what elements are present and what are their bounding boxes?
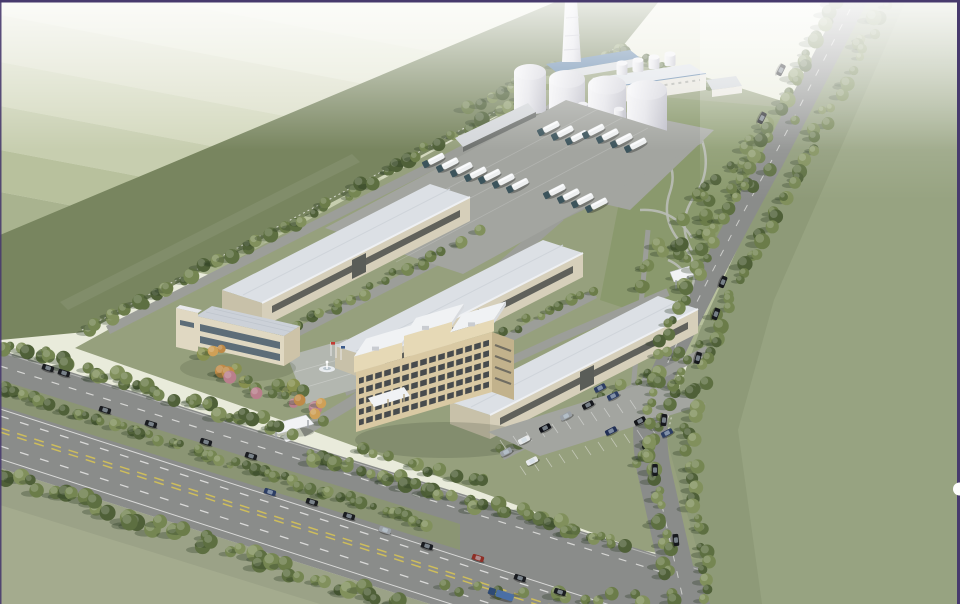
flag <box>331 342 335 345</box>
tree-highlight <box>288 379 295 386</box>
tree-highlight <box>695 269 702 276</box>
tree-highlight <box>636 280 644 288</box>
tree-highlight <box>451 470 458 477</box>
tree-highlight <box>724 303 730 309</box>
tree-highlight <box>369 450 374 455</box>
tree-highlight <box>269 389 274 394</box>
tree-highlight <box>664 398 671 405</box>
tree-highlight <box>703 585 708 590</box>
tree-highlight <box>134 428 140 434</box>
tree-highlight <box>357 580 366 589</box>
tree-highlight <box>21 345 29 353</box>
tree-highlight <box>382 277 387 282</box>
aerial-rendering <box>0 0 960 604</box>
tree-highlight <box>606 587 614 595</box>
tree-highlight <box>154 515 162 523</box>
tree-highlight <box>643 405 648 410</box>
tree-highlight <box>724 294 730 300</box>
car-glass <box>653 467 657 472</box>
tree-highlight <box>653 238 660 245</box>
tree-highlight <box>696 230 701 235</box>
tree-highlight <box>686 386 694 394</box>
tree-highlight <box>770 210 778 218</box>
tree-highlight <box>447 490 453 496</box>
tree-highlight <box>701 574 708 581</box>
tree-highlight <box>360 445 366 451</box>
tree-highlight <box>524 510 530 516</box>
tree-highlight <box>395 470 403 478</box>
tree-highlight <box>14 469 23 478</box>
tree-highlight <box>701 377 708 384</box>
tree-highlight <box>409 460 414 465</box>
tree-highlight <box>676 238 684 246</box>
tree-highlight <box>658 246 665 253</box>
tree-highlight <box>246 413 254 421</box>
tree-highlight <box>250 464 257 471</box>
tree-highlight <box>533 512 541 520</box>
tree-highlight <box>416 520 420 524</box>
tree-highlight <box>650 389 655 394</box>
tree-highlight <box>43 350 50 357</box>
tree-highlight <box>706 347 712 353</box>
tree-highlight <box>83 363 89 369</box>
tree-highlight <box>701 545 709 553</box>
tree-highlight <box>434 463 441 470</box>
tree-highlight <box>402 264 409 271</box>
tree-highlight <box>699 566 704 571</box>
tree-highlight <box>703 228 710 235</box>
tree-highlight <box>426 251 432 257</box>
tree-highlight <box>691 400 699 408</box>
tree-highlight <box>631 590 636 595</box>
tree-highlight <box>283 569 291 577</box>
tree-highlight <box>208 346 214 352</box>
flag <box>336 344 340 347</box>
tree-highlight <box>141 378 149 386</box>
car <box>651 464 658 478</box>
tree-highlight <box>367 178 374 185</box>
tree-highlight <box>354 177 362 185</box>
tree-highlight <box>44 399 51 406</box>
tree-highlight <box>475 225 481 231</box>
tree-highlight <box>79 489 89 499</box>
rooftop-unit <box>422 326 429 330</box>
tree-highlight <box>607 540 612 545</box>
tree-highlight <box>153 436 159 442</box>
tree-highlight <box>700 594 706 600</box>
tree-highlight <box>680 445 687 452</box>
tree-highlight <box>239 408 246 415</box>
tree-highlight <box>658 501 663 506</box>
tree-highlight <box>691 460 699 468</box>
tree-highlight <box>328 456 337 465</box>
tree-highlight <box>364 588 372 596</box>
tree-highlight <box>9 387 15 393</box>
tree-highlight <box>664 329 671 336</box>
tree-highlight <box>101 506 110 515</box>
tree-highlight <box>695 523 700 528</box>
tree-highlight <box>264 554 274 564</box>
tree-highlight <box>440 580 446 586</box>
tree-highlight <box>700 209 708 217</box>
tree-highlight <box>324 487 330 493</box>
tree-highlight <box>703 353 709 359</box>
tree-highlight <box>693 189 701 197</box>
tree-highlight <box>643 436 651 444</box>
tree-highlight <box>218 345 223 350</box>
tree-highlight <box>515 326 519 330</box>
tree-highlight <box>678 368 682 372</box>
tree-highlight <box>360 290 366 296</box>
tree-highlight <box>654 376 661 383</box>
rooftop-unit <box>372 347 379 351</box>
tree-highlight <box>294 482 300 488</box>
tree-highlight <box>518 503 525 510</box>
tree-highlight <box>383 507 388 512</box>
tree-highlight <box>572 526 577 531</box>
tree-highlight <box>437 247 442 252</box>
tree-highlight <box>673 302 680 309</box>
annex-tower <box>176 308 198 352</box>
tree-highlight <box>478 499 484 505</box>
tree-highlight <box>319 416 325 422</box>
tree-highlight <box>767 221 774 228</box>
tree-highlight <box>664 319 669 324</box>
right-haze <box>700 0 960 200</box>
tree-highlight <box>255 551 262 558</box>
tree-highlight <box>576 292 581 297</box>
tree-highlight <box>411 152 417 158</box>
tree-highlight <box>680 423 685 428</box>
tree-highlight <box>652 516 660 524</box>
tree-highlight <box>315 309 320 314</box>
tree-highlight <box>214 455 220 461</box>
tree-highlight <box>59 405 65 411</box>
tree-highlight <box>265 469 270 474</box>
fountain-spray <box>326 361 329 364</box>
tree-highlight <box>519 588 525 594</box>
tree-highlight <box>395 508 402 515</box>
tree-highlight <box>676 376 681 381</box>
tree-highlight <box>133 381 138 386</box>
tree-highlight <box>411 479 417 485</box>
tree-highlight <box>346 457 351 462</box>
tree-highlight <box>712 338 718 344</box>
tree-highlight <box>643 452 649 458</box>
tree-highlight <box>245 376 250 381</box>
tree-highlight <box>384 451 390 457</box>
tree-highlight <box>121 372 128 379</box>
tree-highlight <box>688 433 696 441</box>
tree-highlight <box>26 475 32 481</box>
tree-highlight <box>19 390 25 396</box>
tree-highlight <box>311 576 317 582</box>
tree-highlight <box>656 487 661 492</box>
tree-highlight <box>590 287 595 292</box>
tree-highlight <box>243 461 248 466</box>
tree-highlight <box>177 522 185 530</box>
tree-highlight <box>723 202 730 209</box>
tree-highlight <box>1 387 7 393</box>
tree-highlight <box>703 556 710 563</box>
tree-highlight <box>334 299 339 304</box>
tree-highlight <box>607 534 612 539</box>
tree-highlight <box>50 486 57 493</box>
tree-highlight <box>704 254 709 259</box>
office-side-wall <box>492 332 514 400</box>
tree-highlight <box>598 532 603 537</box>
tree-highlight <box>474 582 479 587</box>
tree-highlight <box>581 595 587 601</box>
tree-highlight <box>456 237 463 244</box>
tree-highlight <box>203 399 209 405</box>
tree-highlight <box>297 217 303 223</box>
flag <box>341 346 345 349</box>
tree-highlight <box>740 268 745 273</box>
car-glass <box>674 537 679 543</box>
tree-highlight <box>500 507 506 513</box>
tree-highlight <box>273 421 279 427</box>
tree-highlight <box>357 467 363 473</box>
tree-highlight <box>674 347 681 354</box>
tree-highlight <box>640 265 644 269</box>
tree-highlight <box>177 440 181 444</box>
tree-highlight <box>207 451 213 457</box>
tree-highlight <box>370 503 374 507</box>
tree-highlight <box>204 535 212 543</box>
tree-highlight <box>719 213 726 220</box>
tree-highlight <box>755 234 764 243</box>
tree-highlight <box>433 490 439 496</box>
tree-highlight <box>619 540 627 548</box>
rendering-stage <box>0 0 960 604</box>
tree-highlight <box>195 445 200 450</box>
tree-highlight <box>752 250 758 256</box>
tree-highlight <box>269 471 275 477</box>
tree-highlight <box>122 515 131 524</box>
tree-highlight <box>402 511 409 518</box>
tree-highlight <box>409 516 415 522</box>
tree-highlight <box>282 392 287 397</box>
tree-highlight <box>367 470 372 475</box>
tree-highlight <box>298 385 305 392</box>
tree-highlight <box>522 314 527 319</box>
tree-highlight <box>133 295 142 304</box>
tree-highlight <box>212 408 221 417</box>
tree-highlight <box>370 594 376 600</box>
tree-highlight <box>350 498 355 503</box>
tree-highlight <box>684 255 688 259</box>
tree-highlight <box>695 515 699 519</box>
tree-highlight <box>146 431 150 435</box>
tree-highlight <box>279 557 287 565</box>
tree-highlight <box>120 422 124 426</box>
tree-highlight <box>477 475 483 481</box>
tree-highlight <box>310 409 316 415</box>
tree-highlight <box>319 576 326 583</box>
tree-highlight <box>652 492 659 499</box>
tree-highlight <box>307 454 315 462</box>
tree-highlight <box>389 269 393 273</box>
tree-highlight <box>66 487 73 494</box>
tree-highlight <box>293 572 299 578</box>
tree-highlight <box>288 475 294 481</box>
tree-highlight <box>663 530 668 535</box>
tree-highlight <box>346 295 352 301</box>
tree-highlight <box>60 357 68 365</box>
tree-highlight <box>455 588 460 593</box>
tree-highlight <box>654 349 660 355</box>
tree-highlight <box>426 484 434 492</box>
tree-highlight <box>684 428 691 435</box>
tree-highlight <box>366 283 370 287</box>
tree-highlight <box>392 593 401 602</box>
tree-highlight <box>686 499 694 507</box>
tree-highlight <box>714 319 723 328</box>
tree-highlight <box>654 335 661 342</box>
tree-highlight <box>282 472 287 477</box>
tree-highlight <box>465 497 470 502</box>
tree-highlight <box>691 260 699 268</box>
tree-highlight <box>665 543 673 551</box>
tree-highlight <box>682 296 688 302</box>
tree-highlight <box>690 481 698 489</box>
tree-highlight <box>162 283 169 290</box>
tree-highlight <box>320 198 326 204</box>
tree-highlight <box>88 494 96 502</box>
tree-highlight <box>235 544 241 550</box>
tree-highlight <box>644 369 648 373</box>
tree-highlight <box>168 395 175 402</box>
tree-highlight <box>657 557 665 565</box>
tree-highlight <box>421 520 428 527</box>
tree-highlight <box>687 473 694 480</box>
tree-highlight <box>616 379 622 385</box>
frame-top <box>0 0 960 3</box>
tree-highlight <box>251 388 258 395</box>
tree-highlight <box>224 371 231 378</box>
tree-highlight <box>659 569 666 576</box>
tree-highlight <box>33 395 40 402</box>
tree-highlight <box>97 418 102 423</box>
tree-highlight <box>288 429 295 436</box>
tree-highlight <box>273 379 280 386</box>
tree-highlight <box>690 410 698 418</box>
tree-highlight <box>189 400 194 405</box>
tree-highlight <box>555 514 563 522</box>
tree-highlight <box>492 497 501 506</box>
car-glass <box>662 417 667 423</box>
tree-highlight <box>185 269 194 278</box>
tree-highlight <box>317 398 323 404</box>
tree-highlight <box>232 458 237 463</box>
tree-highlight <box>680 281 688 289</box>
tree-highlight <box>499 327 504 332</box>
tree-highlight <box>30 484 38 492</box>
tree-highlight <box>82 412 86 416</box>
tree-highlight <box>226 413 231 418</box>
tree-highlight <box>668 594 676 602</box>
tree-highlight <box>737 276 742 281</box>
tree-highlight <box>110 419 117 426</box>
tree-highlight <box>305 483 312 490</box>
tree-highlight <box>264 228 272 236</box>
tree-highlight <box>663 347 669 353</box>
frame-left <box>0 0 2 604</box>
rooftop-unit <box>468 322 475 326</box>
tree-highlight <box>738 257 746 265</box>
tree-highlight <box>154 390 161 397</box>
tree-highlight <box>677 213 684 220</box>
tree-highlight <box>684 356 689 361</box>
tree-highlight <box>708 237 715 244</box>
tree-highlight <box>346 492 352 498</box>
tree-highlight <box>355 497 362 504</box>
tree-highlight <box>696 243 703 250</box>
tree-highlight <box>697 543 701 547</box>
tree-highlight <box>89 319 96 326</box>
tree-highlight <box>307 450 311 454</box>
tree-highlight <box>648 399 653 404</box>
tree-highlight <box>696 341 700 345</box>
tree-highlight <box>645 418 651 424</box>
tree-highlight <box>226 250 234 258</box>
tree-highlight <box>111 366 119 374</box>
tree-highlight <box>75 410 81 416</box>
tree-highlight <box>295 395 301 401</box>
tree-highlight <box>659 538 666 545</box>
